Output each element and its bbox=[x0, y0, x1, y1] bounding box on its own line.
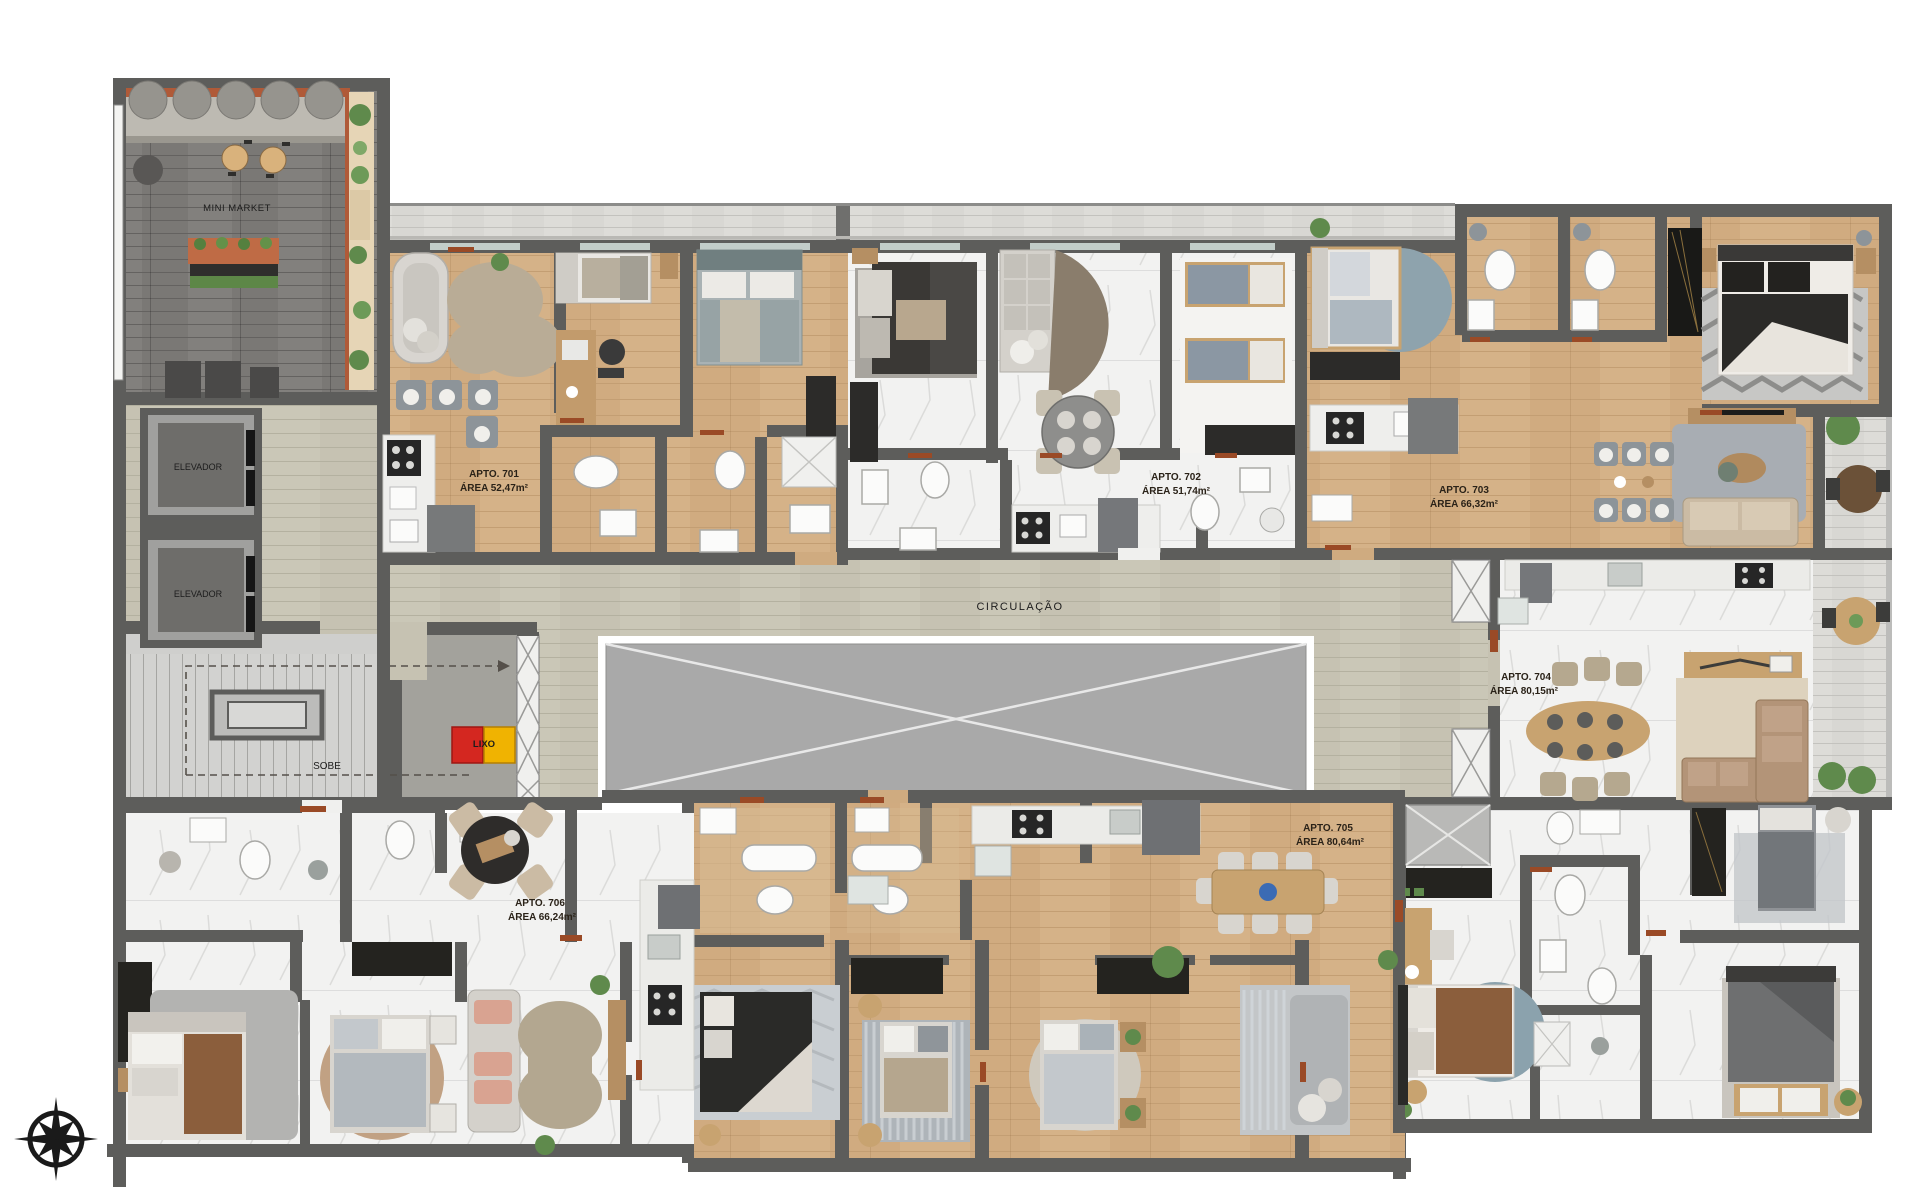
svg-text:SOBE: SOBE bbox=[313, 761, 341, 772]
svg-text:ELEVADOR: ELEVADOR bbox=[174, 462, 223, 472]
svg-text:APTO. 703: APTO. 703 bbox=[1439, 485, 1489, 496]
svg-text:APTO. 706: APTO. 706 bbox=[515, 898, 565, 909]
svg-text:APTO. 701: APTO. 701 bbox=[469, 469, 519, 480]
svg-text:ÁREA 66,24m²: ÁREA 66,24m² bbox=[508, 910, 577, 923]
svg-text:LIXO: LIXO bbox=[473, 739, 495, 750]
svg-text:APTO. 705: APTO. 705 bbox=[1303, 823, 1353, 834]
svg-text:APTO. 704: APTO. 704 bbox=[1501, 672, 1551, 683]
svg-text:ÁREA 66,32m²: ÁREA 66,32m² bbox=[1430, 497, 1499, 510]
svg-text:CIRCULAÇÃO: CIRCULAÇÃO bbox=[976, 600, 1063, 613]
svg-text:APTO. 702: APTO. 702 bbox=[1151, 472, 1201, 483]
svg-text:ÁREA 52,47m²: ÁREA 52,47m² bbox=[460, 481, 529, 494]
svg-text:ÁREA 80,64m²: ÁREA 80,64m² bbox=[1296, 835, 1365, 848]
svg-text:ELEVADOR: ELEVADOR bbox=[174, 589, 223, 599]
svg-text:ÁREA 80,15m²: ÁREA 80,15m² bbox=[1490, 684, 1559, 697]
svg-text:ÁREA 51,74m²: ÁREA 51,74m² bbox=[1142, 484, 1211, 497]
svg-text:MINI MARKET: MINI MARKET bbox=[203, 203, 271, 214]
